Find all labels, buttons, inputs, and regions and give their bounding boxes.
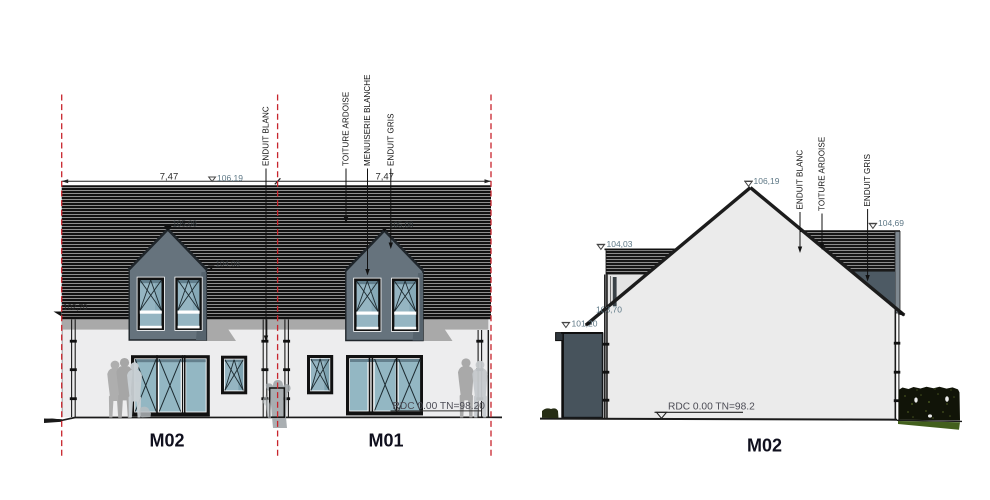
svg-text:105,08: 105,08 [173, 220, 198, 229]
svg-text:ENDUIT GRIS: ENDUIT GRIS [386, 113, 395, 166]
svg-text:ENDUIT GRIS: ENDUIT GRIS [863, 154, 872, 207]
svg-text:101,20: 101,20 [572, 319, 598, 329]
svg-text:106,19: 106,19 [754, 176, 780, 186]
svg-text:104,69: 104,69 [878, 218, 904, 228]
svg-text:103,70: 103,70 [596, 305, 622, 315]
svg-text:105,08: 105,08 [389, 221, 414, 230]
svg-text:7,47: 7,47 [160, 172, 179, 183]
svg-text:ENDUIT BLANC: ENDUIT BLANC [796, 150, 805, 210]
svg-text:104,03: 104,03 [607, 239, 633, 249]
svg-text:M02: M02 [747, 435, 782, 455]
svg-text:MENUISERIE BLANCHE: MENUISERIE BLANCHE [363, 74, 372, 166]
svg-text:RDC 0.00 TN=98.20: RDC 0.00 TN=98.20 [393, 401, 486, 412]
svg-text:ENDUIT BLANC: ENDUIT BLANC [262, 106, 271, 166]
svg-text:102,70: 102,70 [63, 303, 88, 312]
svg-text:M02: M02 [149, 431, 184, 451]
svg-text:106,19: 106,19 [217, 173, 243, 183]
svg-text:104,08: 104,08 [216, 260, 241, 269]
svg-text:TOITURE ARDOISE: TOITURE ARDOISE [818, 137, 827, 211]
svg-text:TOITURE ARDOISE: TOITURE ARDOISE [342, 92, 351, 166]
svg-text:M01: M01 [368, 431, 403, 451]
svg-text:RDC 0.00 TN=98.2: RDC 0.00 TN=98.2 [668, 402, 755, 413]
